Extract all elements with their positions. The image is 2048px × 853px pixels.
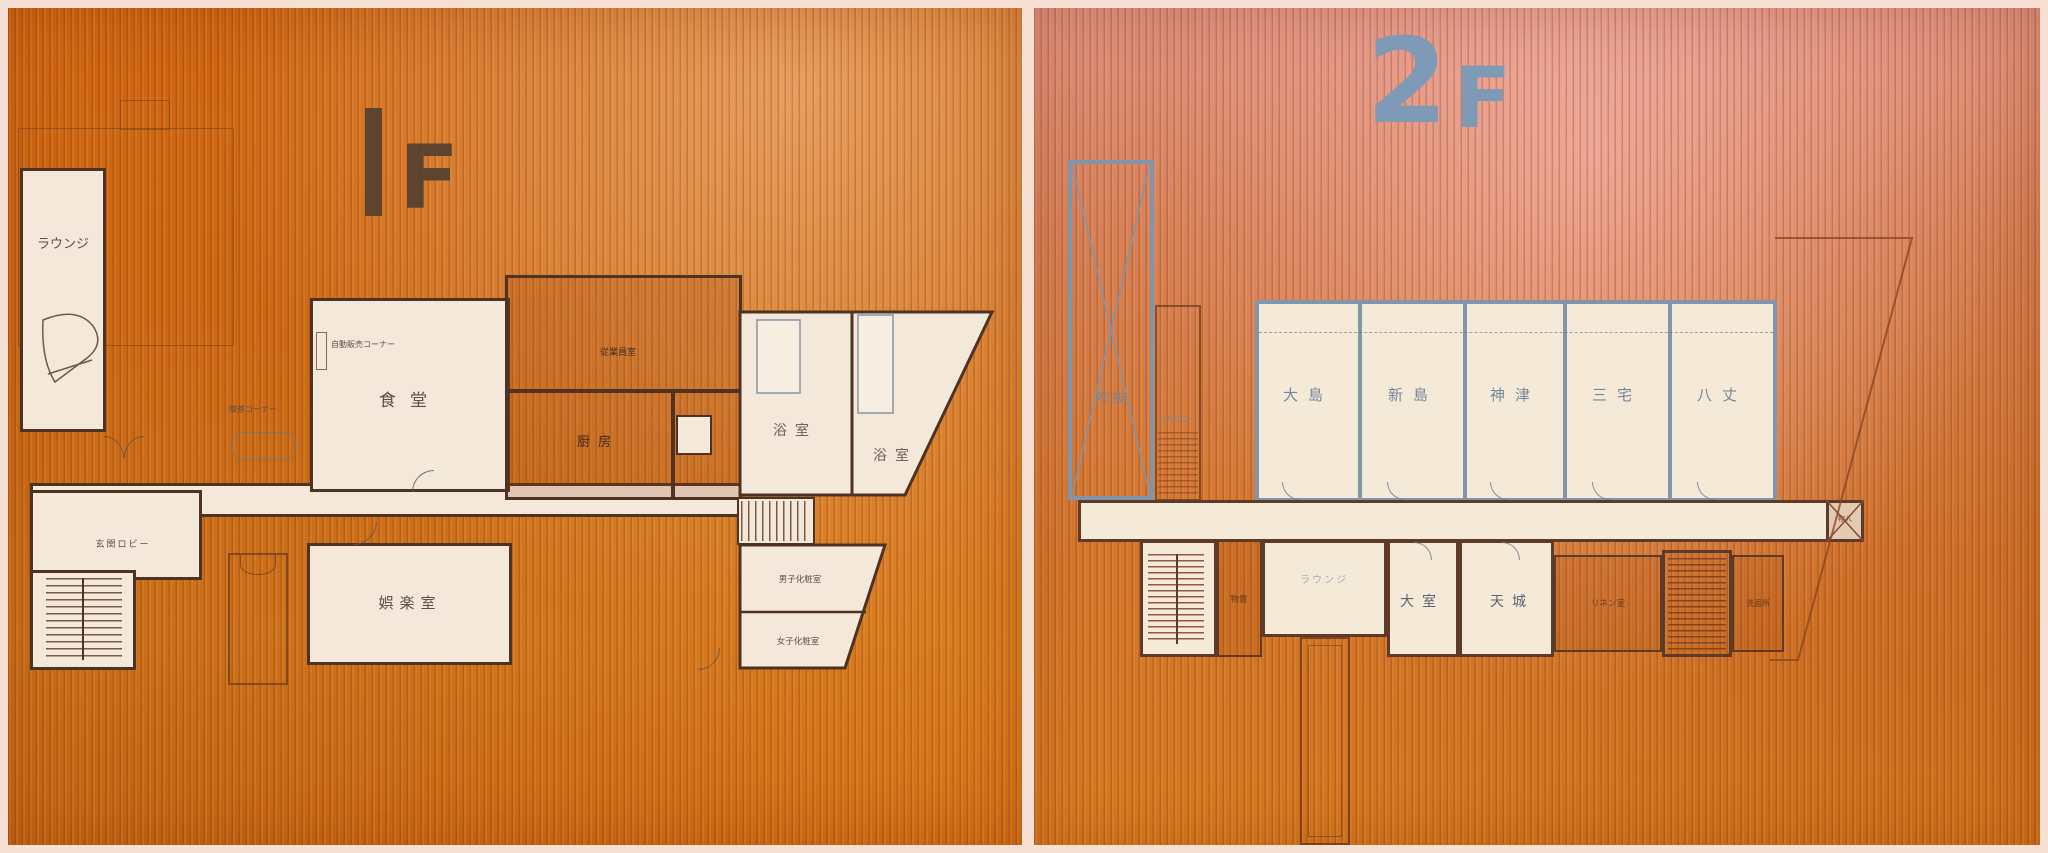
porch-door-arc	[240, 555, 276, 575]
room-label-closet: 物入	[1828, 516, 1862, 523]
tea-counter-outline	[232, 432, 296, 460]
stairs-mid-treads	[741, 501, 811, 541]
room-label-kozu: 神津	[1484, 388, 1546, 403]
room-label-vending-corner: 自動販売コーナー	[331, 341, 431, 349]
room-lounge-2f	[1262, 540, 1387, 637]
room-label-mens-powder: 男子化粧室	[755, 576, 845, 585]
door-arc-lobby-right	[124, 436, 144, 458]
corridor-2f	[1078, 500, 1864, 542]
room-label-balcony: バルコニー	[1150, 416, 1206, 424]
room-staff	[505, 275, 742, 392]
room-label-kitchen: 厨房	[560, 436, 636, 449]
room-label-miyake: 三宅	[1586, 388, 1648, 403]
stairs-2f-right-treads	[1668, 558, 1726, 650]
stairs-sw-treads	[46, 578, 122, 660]
closet-partition-line	[1259, 332, 1773, 333]
room-label-womens-powder: 女子化粧室	[753, 638, 843, 647]
guest-wall-2	[1463, 304, 1467, 498]
balcony-hatch	[1158, 432, 1198, 498]
floor-title-1-digit	[365, 108, 382, 216]
stairs-2f-left-stringer	[1176, 554, 1178, 644]
room-label-hachijo: 八丈	[1691, 388, 1753, 403]
guest-wall-4	[1668, 304, 1672, 498]
door-arc-changing	[698, 648, 720, 670]
room-label-bath-1: 浴室	[765, 424, 825, 438]
door-arc-recreation	[353, 521, 377, 545]
room-entrance-lobby	[30, 490, 202, 580]
room-label-linen: リネン室	[1580, 600, 1636, 609]
room-label-washroom: 洗面所	[1734, 600, 1782, 608]
floor-panel-1f: F ラウンジ 玄関ロビー 食堂 自動販売コーナー 喫茶コーナー 従業員室 厨房 …	[8, 8, 1022, 845]
room-label-niijima: 新島	[1382, 388, 1444, 403]
vending-machine-outline	[316, 332, 327, 370]
floor-title-2-digit: 2	[1366, 22, 1448, 140]
room-label-omuro: 大室	[1389, 595, 1455, 609]
stairs-sw-stringer	[82, 578, 84, 660]
room-label-entrance-lobby: 玄関ロビー	[68, 541, 178, 550]
kitchen-annex-nook	[676, 415, 712, 455]
room-label-lounge-1f: ラウンジ	[30, 238, 96, 251]
floor-panel-2f: 2 F 吹抜 バルコニー 大島 新島 神津 三宅 八丈 物入 物置 ラウンジ 大…	[1034, 8, 2040, 845]
room-label-dining: 食堂	[360, 393, 460, 410]
door-arc-lobby-left	[104, 436, 124, 458]
floor-title-1f-letter: F	[399, 134, 459, 222]
room-label-bath-2: 浴室	[865, 449, 925, 463]
guest-wall-1	[1358, 304, 1362, 498]
guest-wall-3	[1563, 304, 1567, 498]
room-label-staff: 従業員室	[578, 349, 658, 358]
room-lounge-1f	[20, 168, 106, 432]
floorplan-photo: { "f1": { "num": "1", "suf": "F", "loung…	[0, 0, 2048, 853]
room-label-lounge-2f: ラウンジ	[1282, 576, 1366, 586]
room-label-storage: 物置	[1219, 596, 1259, 605]
exterior-stair-inner	[1308, 645, 1342, 837]
room-label-recreation: 娯楽室	[363, 596, 457, 611]
room-label-oshima: 大島	[1277, 388, 1339, 403]
chimney-outline	[120, 100, 170, 130]
room-label-tea-corner: 喫茶コーナー	[208, 406, 298, 414]
floor-title-2f-letter: F	[1454, 56, 1511, 140]
room-label-atrium: 吹抜	[1090, 392, 1134, 405]
room-label-amagi: 天城	[1479, 595, 1545, 609]
atrium-void	[1068, 160, 1154, 500]
